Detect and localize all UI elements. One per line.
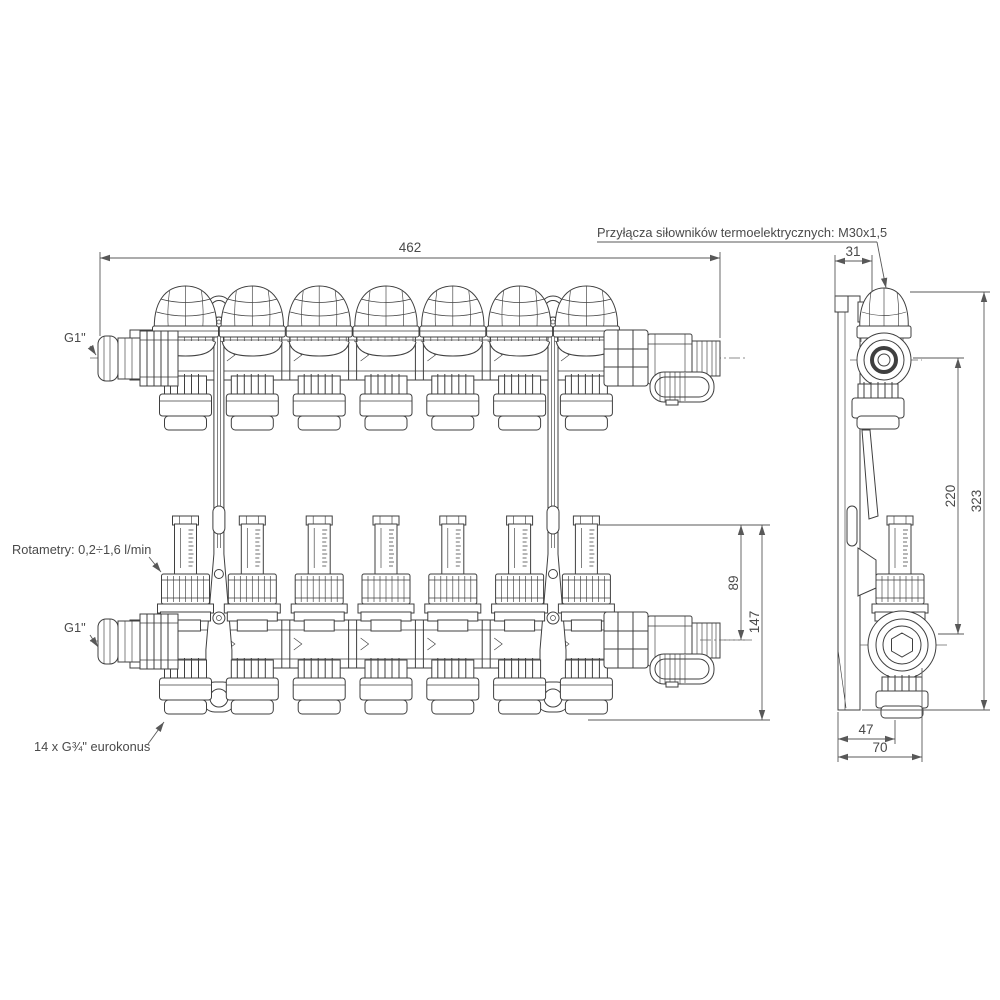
supply-inlet-leader [90,346,96,355]
rotameters-label: Rotametry: 0,2÷1,6 l/min [12,542,151,557]
return-inlet-connector [98,614,178,669]
front-view [90,286,752,714]
actuator-thread-label: Przyłącza siłowników termoelektrycznych:… [597,225,887,240]
outlets-label: 14 x G¾" eurokonus [34,739,150,754]
supply-inlet-connector [98,331,178,386]
dim-89-text: 89 [726,575,741,590]
dim-31-text: 31 [845,244,860,259]
rotameters-leader [149,557,161,572]
supply-inlet-label: G1" [64,330,86,345]
bottom-end-ball-valve [604,612,720,687]
dim-462-text: 462 [399,240,422,255]
manifold-technical-drawing: 462 31 89 147 220 323 47 70 Przyłącza si… [0,0,1000,1000]
top-eurokonus-outlets [160,374,613,430]
top-end-ball-valve [604,330,720,405]
dim-220-text: 220 [943,485,958,508]
dim-47-text: 47 [858,722,873,737]
side-view [835,288,948,718]
actuator-thread-leader [877,242,886,288]
dim-323-text: 323 [969,490,984,513]
return-inlet-label: G1" [64,620,86,635]
side-bottom-valve-assembly [868,516,936,718]
outlets-leader [148,722,164,744]
dim-70-text: 70 [872,740,887,755]
drawing-canvas: 462 31 89 147 220 323 47 70 Przyłącza si… [0,0,1000,1000]
dim-147-text: 147 [747,611,762,634]
